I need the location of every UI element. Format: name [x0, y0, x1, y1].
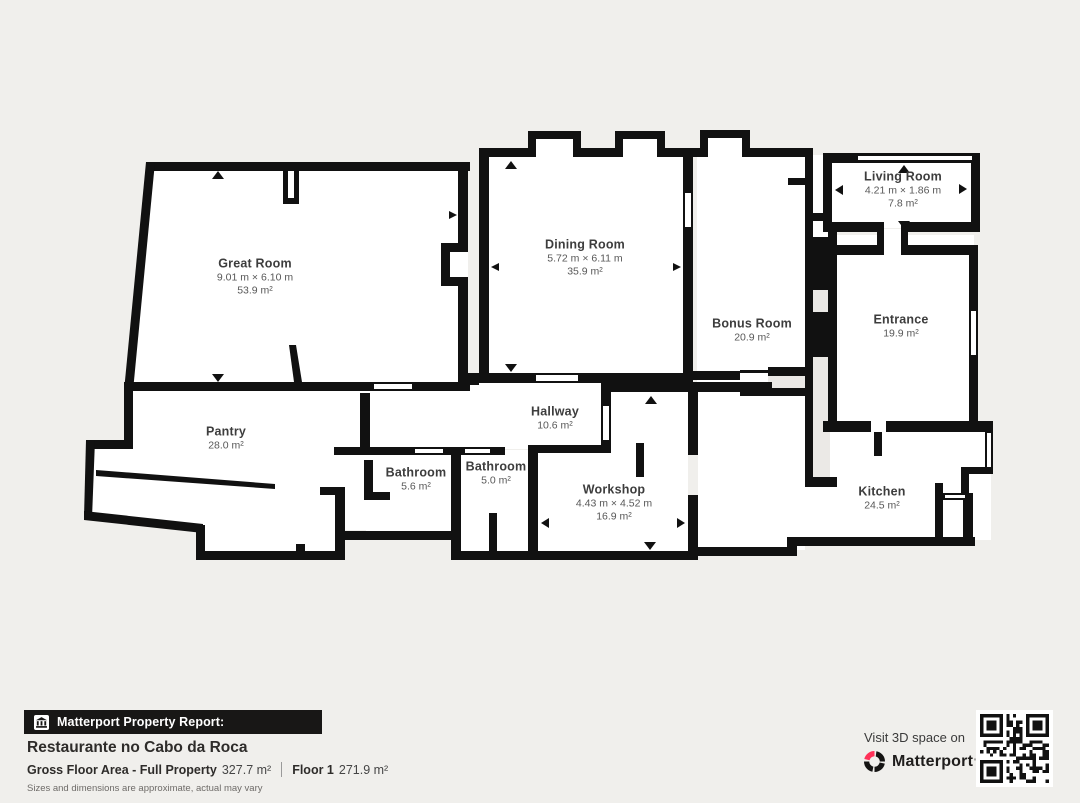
room-name: Living Room	[864, 169, 942, 185]
room-name: Dining Room	[545, 237, 625, 253]
gfa-label: Gross Floor Area - Full Property	[27, 763, 217, 777]
room-dims: 4.21 m × 1.86 m	[864, 185, 942, 198]
floor-value: 271.9 m²	[339, 763, 388, 777]
room-area: 28.0 m²	[206, 439, 246, 452]
room-label-entrance: Entrance 19.9 m²	[873, 311, 928, 340]
room-label-great-room: Great Room 9.01 m × 6.10 m 53.9 m²	[217, 256, 293, 299]
room-dims: 4.43 m × 4.52 m	[576, 498, 652, 511]
room-label-bathroom-1: Bathroom 5.6 m²	[386, 464, 447, 493]
matterport-wordmark: Matterport	[892, 753, 973, 771]
building-icon	[34, 715, 49, 730]
room-fills	[88, 138, 991, 555]
room-area: 10.6 m²	[531, 419, 579, 432]
room-label-workshop: Workshop 4.43 m × 4.52 m 16.9 m²	[576, 482, 652, 525]
room-area: 35.9 m²	[545, 266, 625, 279]
visit-3d-cta: Visit 3D space on Matterportʹ	[864, 730, 976, 772]
room-label-bonus-room: Bonus Room 20.9 m²	[712, 315, 792, 344]
qr-code	[976, 710, 1053, 787]
room-name: Pantry	[206, 423, 246, 439]
room-area: 24.5 m²	[858, 499, 905, 512]
room-dims: 5.72 m × 6.11 m	[545, 253, 625, 266]
room-label-living-room: Living Room 4.21 m × 1.86 m 7.8 m²	[864, 169, 942, 212]
room-dims: 9.01 m × 6.10 m	[217, 272, 293, 285]
room-name: Kitchen	[858, 483, 905, 499]
disclaimer-text: Sizes and dimensions are approximate, ac…	[27, 783, 263, 794]
room-name: Entrance	[873, 311, 928, 327]
room-area: 16.9 m²	[576, 511, 652, 524]
summary-divider	[281, 762, 282, 777]
room-label-bathroom-2: Bathroom 5.0 m²	[466, 458, 527, 487]
matterport-mark-icon	[864, 751, 885, 772]
room-area: 20.9 m²	[712, 331, 792, 344]
room-name: Hallway	[531, 403, 579, 419]
room-name: Bathroom	[466, 458, 527, 474]
room-label-pantry: Pantry 28.0 m²	[206, 423, 246, 452]
room-label-kitchen: Kitchen 24.5 m²	[858, 483, 905, 512]
matterport-logo: Matterportʹ	[864, 751, 976, 772]
gfa-value: 327.7 m²	[222, 763, 271, 777]
property-name: Restaurante no Cabo da Roca	[27, 739, 248, 757]
room-name: Bonus Room	[712, 315, 792, 331]
room-area: 7.8 m²	[864, 198, 942, 211]
room-label-dining-room: Dining Room 5.72 m × 6.11 m 35.9 m²	[545, 237, 625, 280]
room-area: 5.6 m²	[386, 480, 447, 493]
room-area: 19.9 m²	[873, 327, 928, 340]
floor-plan	[0, 0, 1080, 803]
report-bar-label: Matterport Property Report:	[57, 715, 224, 729]
room-name: Workshop	[576, 482, 652, 498]
visit-label: Visit 3D space on	[864, 730, 976, 745]
floor-label: Floor 1	[292, 763, 334, 777]
area-summary: Gross Floor Area - Full Property 327.7 m…	[27, 762, 388, 777]
room-name: Bathroom	[386, 464, 447, 480]
report-header-bar: Matterport Property Report:	[25, 711, 321, 733]
room-name: Great Room	[217, 256, 293, 272]
room-label-hallway: Hallway 10.6 m²	[531, 403, 579, 432]
room-area: 53.9 m²	[217, 285, 293, 298]
room-area: 5.0 m²	[466, 474, 527, 487]
property-report-page: Great Room 9.01 m × 6.10 m 53.9 m² Dinin…	[0, 0, 1080, 803]
